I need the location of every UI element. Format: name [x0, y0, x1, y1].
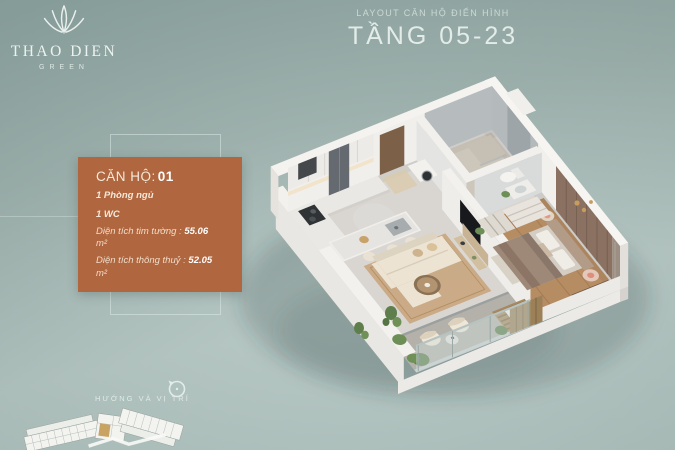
east-wall-end [620, 243, 628, 290]
unit-info-card: CĂN HỘ:01 1 Phòng ngủ 1 WC Diện tích tim… [78, 157, 242, 292]
brand-name: THAO DIEN [8, 43, 120, 61]
compass-north-icon [163, 375, 189, 401]
wall-art [574, 200, 579, 205]
unit-number: 01 [158, 169, 174, 184]
brand-logo: THAO DIEN GREEN [8, 3, 120, 71]
unit-label: CĂN HỘ: [96, 169, 156, 184]
bedroom-count: 1 Phòng ngủ [96, 189, 230, 203]
site-plan-minimap [18, 402, 188, 450]
wall-art [589, 200, 593, 204]
brochure-page: THAO DIEN GREEN LAYOUT CĂN HỘ ĐIỂN HÌNH … [0, 0, 675, 450]
minimap-unit-highlight [98, 423, 110, 437]
layout-eyebrow: LAYOUT CĂN HỘ ĐIỂN HÌNH [288, 8, 578, 18]
unit-title: CĂN HỘ:01 [96, 169, 230, 184]
decorative-line [0, 216, 78, 217]
page-header: LAYOUT CĂN HỘ ĐIỂN HÌNH TẦNG 05-23 [288, 8, 578, 51]
wc-count: 1 WC [96, 208, 230, 222]
washer-door [422, 171, 432, 181]
gross-area: Diện tích tim tường : 55.06 m² [96, 226, 230, 252]
wall-art [582, 208, 586, 212]
brand-subname: GREEN [8, 64, 120, 71]
floor-range-title: TẦNG 05-23 [288, 22, 578, 51]
lotus-emblem-icon [41, 3, 87, 36]
net-area: Diện tích thông thuỷ : 52.05 m² [96, 255, 230, 281]
